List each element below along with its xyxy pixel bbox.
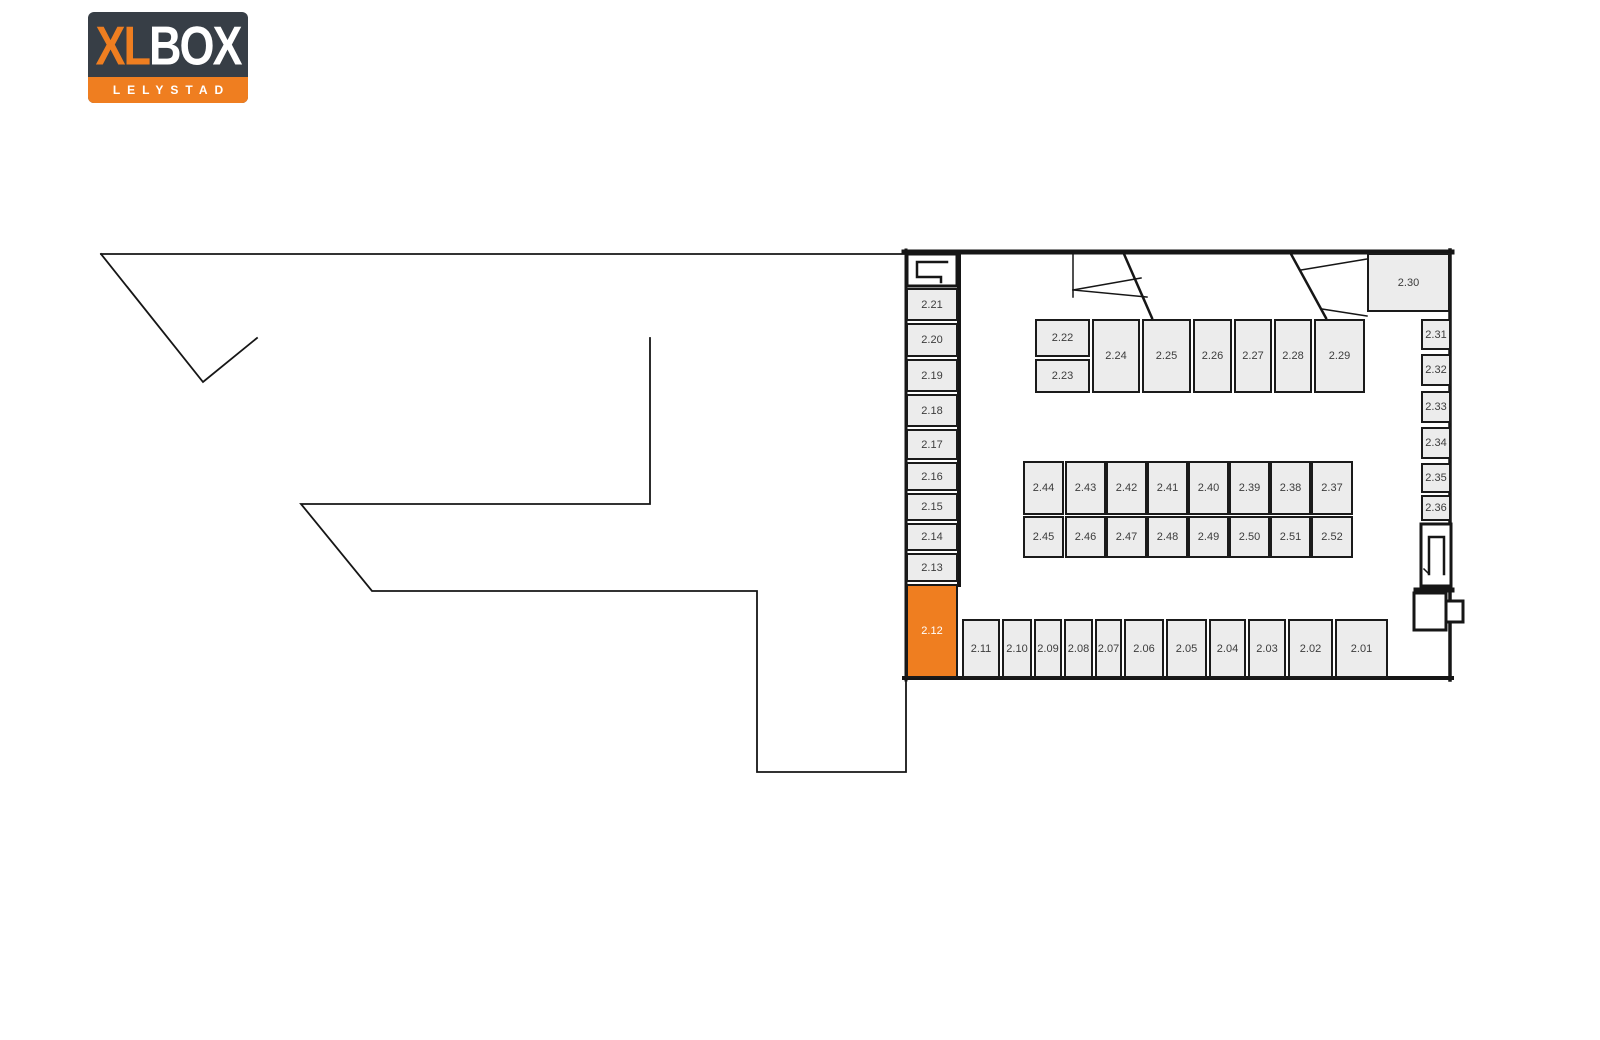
unit-2.30[interactable]: 2.30 — [1367, 253, 1450, 312]
units-layer: 2.212.202.192.182.172.162.152.142.132.12… — [0, 0, 1600, 1040]
unit-label: 2.36 — [1425, 502, 1446, 514]
unit-2.37[interactable]: 2.37 — [1311, 461, 1353, 515]
unit-label: 2.18 — [921, 405, 942, 417]
unit-2.36[interactable]: 2.36 — [1421, 495, 1451, 521]
unit-label: 2.50 — [1239, 531, 1260, 543]
unit-2.22[interactable]: 2.22 — [1035, 319, 1090, 357]
unit-2.23[interactable]: 2.23 — [1035, 359, 1090, 393]
unit-label: 2.35 — [1425, 472, 1446, 484]
unit-2.27[interactable]: 2.27 — [1234, 319, 1272, 393]
unit-2.03[interactable]: 2.03 — [1248, 619, 1286, 678]
unit-label: 2.26 — [1202, 350, 1223, 362]
unit-2.39[interactable]: 2.39 — [1229, 461, 1270, 515]
unit-2.01[interactable]: 2.01 — [1335, 619, 1388, 678]
unit-2.43[interactable]: 2.43 — [1065, 461, 1106, 515]
unit-label: 2.40 — [1198, 482, 1219, 494]
unit-label: 2.25 — [1156, 350, 1177, 362]
unit-label: 2.01 — [1351, 643, 1372, 655]
unit-label: 2.22 — [1052, 332, 1073, 344]
unit-2.12[interactable]: 2.12 — [906, 584, 958, 678]
unit-label: 2.52 — [1321, 531, 1342, 543]
unit-2.10[interactable]: 2.10 — [1002, 619, 1032, 678]
unit-2.38[interactable]: 2.38 — [1270, 461, 1311, 515]
unit-label: 2.28 — [1282, 350, 1303, 362]
unit-label: 2.21 — [921, 299, 942, 311]
unit-2.46[interactable]: 2.46 — [1065, 516, 1106, 558]
unit-2.20[interactable]: 2.20 — [906, 323, 958, 357]
unit-2.50[interactable]: 2.50 — [1229, 516, 1270, 558]
unit-2.17[interactable]: 2.17 — [906, 429, 958, 460]
unit-label: 2.48 — [1157, 531, 1178, 543]
unit-label: 2.12 — [921, 625, 942, 637]
unit-2.18[interactable]: 2.18 — [906, 394, 958, 427]
unit-2.16[interactable]: 2.16 — [906, 462, 958, 491]
unit-label: 2.42 — [1116, 482, 1137, 494]
unit-2.24[interactable]: 2.24 — [1092, 319, 1140, 393]
unit-label: 2.05 — [1176, 643, 1197, 655]
unit-label: 2.32 — [1425, 364, 1446, 376]
unit-2.35[interactable]: 2.35 — [1421, 463, 1451, 493]
unit-label: 2.17 — [921, 439, 942, 451]
unit-2.26[interactable]: 2.26 — [1193, 319, 1232, 393]
unit-label: 2.46 — [1075, 531, 1096, 543]
unit-2.52[interactable]: 2.52 — [1311, 516, 1353, 558]
unit-2.25[interactable]: 2.25 — [1142, 319, 1191, 393]
unit-label: 2.47 — [1116, 531, 1137, 543]
unit-2.15[interactable]: 2.15 — [906, 493, 958, 521]
unit-label: 2.44 — [1033, 482, 1054, 494]
unit-2.05[interactable]: 2.05 — [1166, 619, 1207, 678]
unit-2.06[interactable]: 2.06 — [1124, 619, 1164, 678]
unit-2.19[interactable]: 2.19 — [906, 359, 958, 392]
unit-label: 2.10 — [1006, 643, 1027, 655]
unit-label: 2.31 — [1425, 329, 1446, 341]
unit-label: 2.04 — [1217, 643, 1238, 655]
unit-label: 2.43 — [1075, 482, 1096, 494]
unit-label: 2.37 — [1321, 482, 1342, 494]
unit-2.32[interactable]: 2.32 — [1421, 354, 1451, 386]
unit-label: 2.15 — [921, 501, 942, 513]
unit-2.41[interactable]: 2.41 — [1147, 461, 1188, 515]
unit-label: 2.08 — [1068, 643, 1089, 655]
unit-2.08[interactable]: 2.08 — [1064, 619, 1093, 678]
unit-label: 2.13 — [921, 562, 942, 574]
unit-2.40[interactable]: 2.40 — [1188, 461, 1229, 515]
unit-2.04[interactable]: 2.04 — [1209, 619, 1246, 678]
unit-2.48[interactable]: 2.48 — [1147, 516, 1188, 558]
unit-label: 2.29 — [1329, 350, 1350, 362]
unit-2.07[interactable]: 2.07 — [1095, 619, 1122, 678]
unit-label: 2.49 — [1198, 531, 1219, 543]
unit-2.34[interactable]: 2.34 — [1421, 427, 1451, 459]
unit-label: 2.38 — [1280, 482, 1301, 494]
unit-2.33[interactable]: 2.33 — [1421, 391, 1451, 423]
unit-2.13[interactable]: 2.13 — [906, 553, 958, 582]
unit-label: 2.20 — [921, 334, 942, 346]
page: XLBOX LELYSTAD — [0, 0, 1600, 1040]
unit-2.11[interactable]: 2.11 — [962, 619, 1000, 678]
unit-label: 2.24 — [1105, 350, 1126, 362]
unit-label: 2.27 — [1242, 350, 1263, 362]
unit-label: 2.06 — [1133, 643, 1154, 655]
unit-2.02[interactable]: 2.02 — [1288, 619, 1333, 678]
unit-label: 2.07 — [1098, 643, 1119, 655]
unit-label: 2.23 — [1052, 370, 1073, 382]
unit-label: 2.14 — [921, 531, 942, 543]
unit-2.51[interactable]: 2.51 — [1270, 516, 1311, 558]
unit-label: 2.41 — [1157, 482, 1178, 494]
unit-label: 2.33 — [1425, 401, 1446, 413]
unit-2.31[interactable]: 2.31 — [1421, 319, 1451, 350]
unit-2.09[interactable]: 2.09 — [1034, 619, 1062, 678]
unit-label: 2.11 — [971, 643, 992, 655]
unit-2.44[interactable]: 2.44 — [1023, 461, 1064, 515]
unit-label: 2.02 — [1300, 643, 1321, 655]
unit-2.21[interactable]: 2.21 — [906, 288, 958, 321]
unit-label: 2.16 — [921, 471, 942, 483]
unit-label: 2.19 — [921, 370, 942, 382]
unit-2.45[interactable]: 2.45 — [1023, 516, 1064, 558]
unit-2.49[interactable]: 2.49 — [1188, 516, 1229, 558]
unit-label: 2.34 — [1425, 437, 1446, 449]
unit-label: 2.03 — [1256, 643, 1277, 655]
unit-label: 2.45 — [1033, 531, 1054, 543]
unit-2.47[interactable]: 2.47 — [1106, 516, 1147, 558]
unit-2.14[interactable]: 2.14 — [906, 523, 958, 551]
unit-label: 2.30 — [1398, 277, 1419, 289]
unit-2.29[interactable]: 2.29 — [1314, 319, 1365, 393]
unit-label: 2.51 — [1280, 531, 1301, 543]
unit-label: 2.09 — [1037, 643, 1058, 655]
unit-2.42[interactable]: 2.42 — [1106, 461, 1147, 515]
unit-2.28[interactable]: 2.28 — [1274, 319, 1312, 393]
unit-label: 2.39 — [1239, 482, 1260, 494]
